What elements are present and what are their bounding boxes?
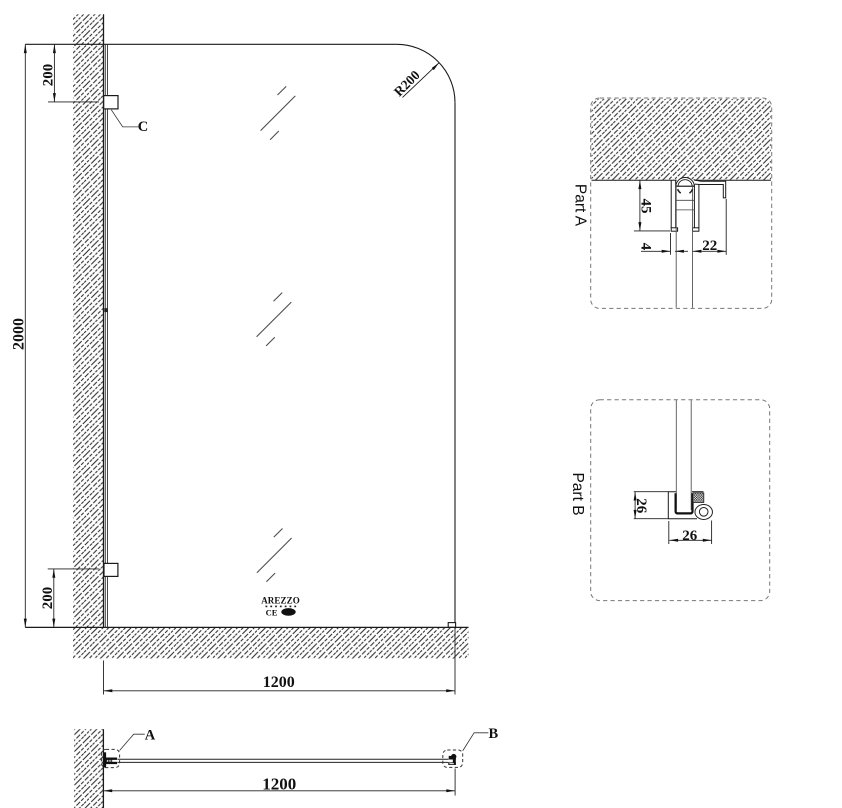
svg-text:AREZZO: AREZZO bbox=[261, 595, 300, 605]
svg-text:Part B: Part B bbox=[569, 472, 586, 515]
svg-text:22: 22 bbox=[702, 238, 717, 254]
svg-text:26: 26 bbox=[633, 498, 649, 514]
svg-text:200: 200 bbox=[40, 64, 56, 87]
svg-text:4: 4 bbox=[638, 243, 654, 251]
svg-text:1200: 1200 bbox=[262, 774, 296, 793]
svg-text:2000: 2000 bbox=[10, 318, 27, 350]
svg-text:1200: 1200 bbox=[263, 674, 295, 691]
svg-text:A: A bbox=[145, 727, 156, 743]
svg-text:45: 45 bbox=[638, 199, 654, 214]
svg-text:CE: CE bbox=[266, 607, 278, 617]
svg-text:26: 26 bbox=[682, 528, 698, 544]
svg-text:B: B bbox=[488, 726, 498, 742]
svg-text:C: C bbox=[138, 119, 148, 135]
svg-text:200: 200 bbox=[40, 587, 56, 610]
svg-text:Part A: Part A bbox=[572, 184, 589, 227]
